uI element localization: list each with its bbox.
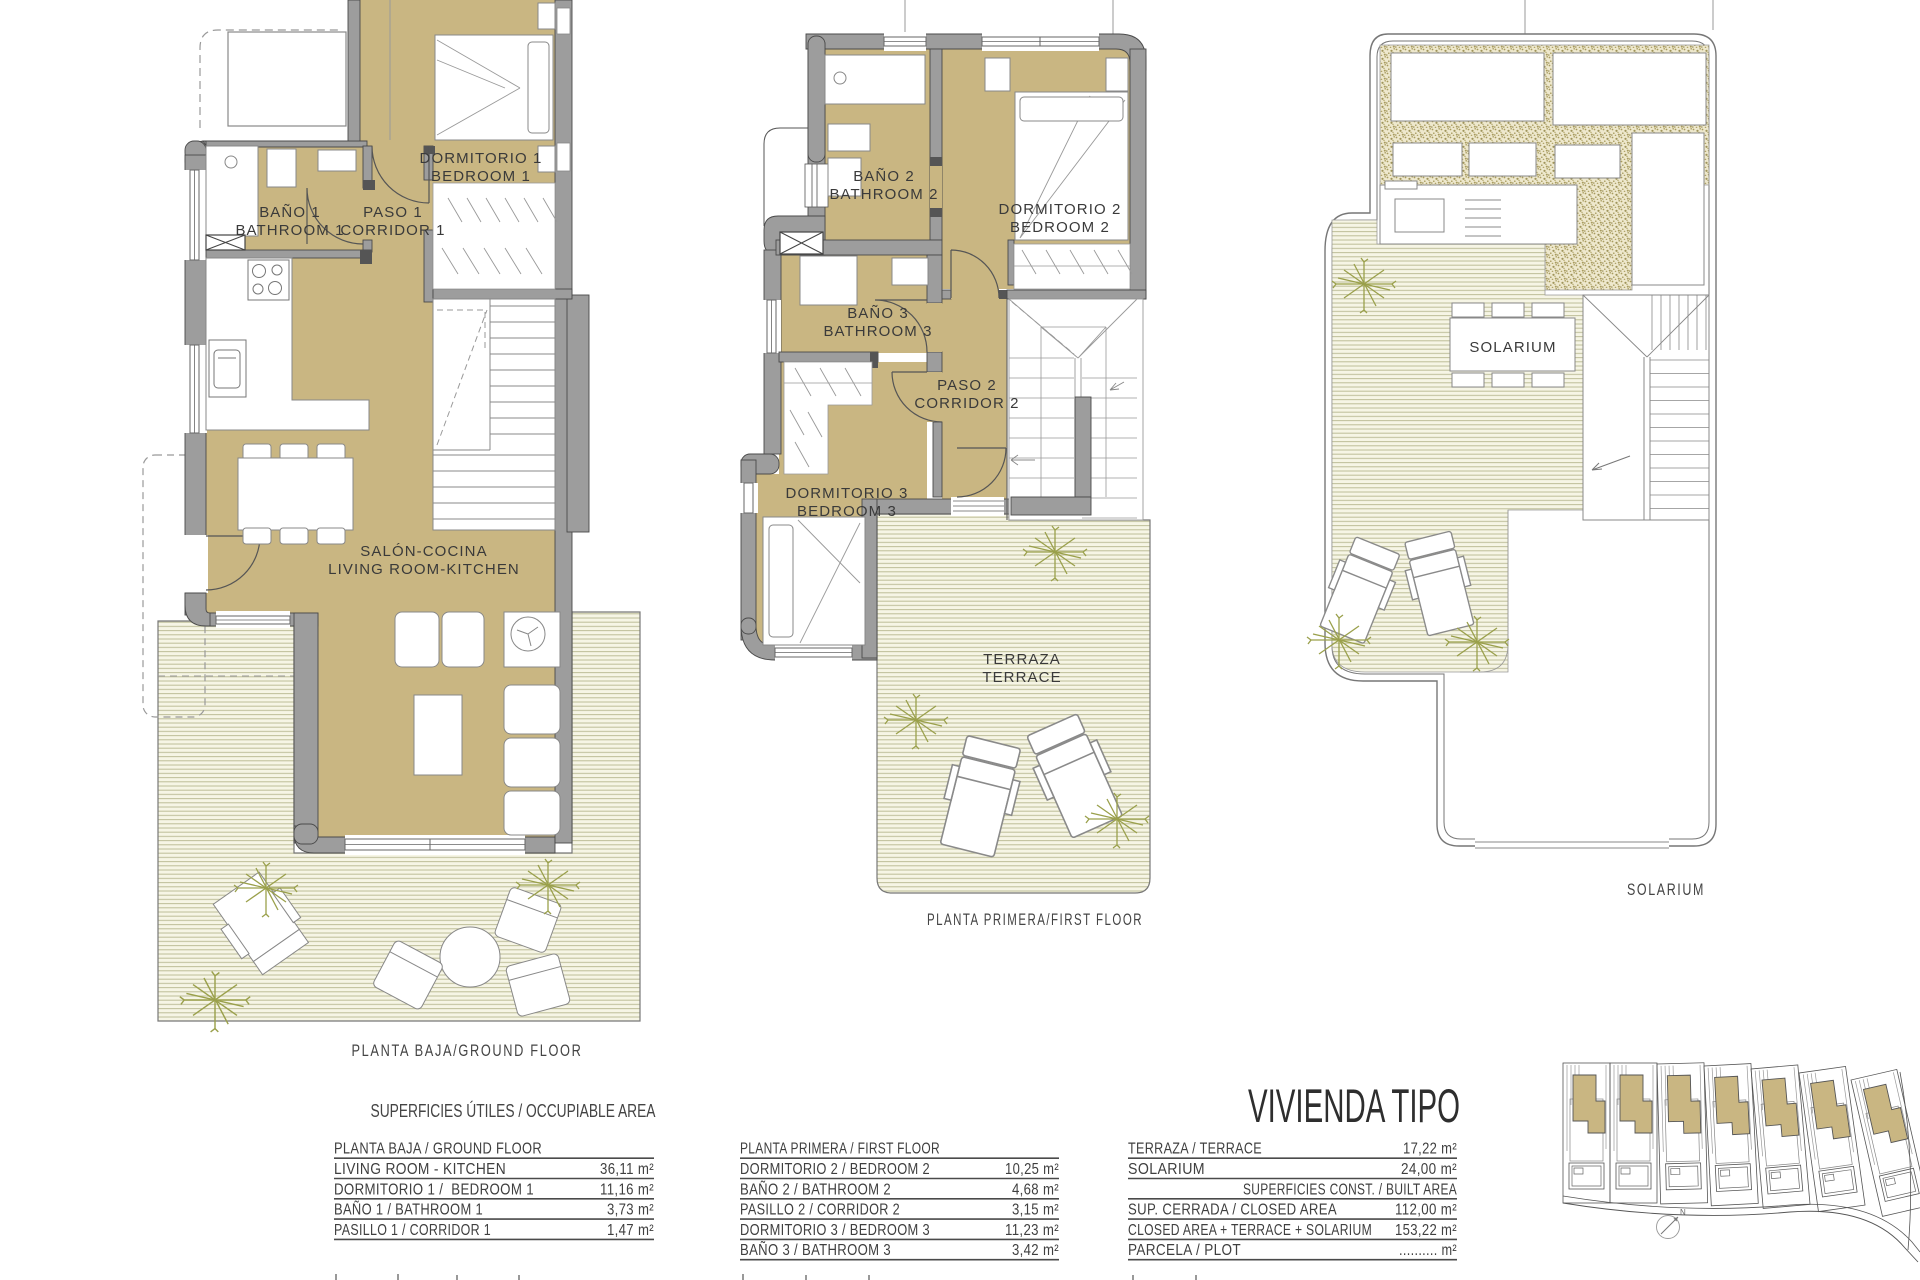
svg-text:DORMITORIO 2: DORMITORIO 2 — [999, 201, 1122, 218]
svg-text:PLANTA PRIMERA/FIRST FLOOR: PLANTA PRIMERA/FIRST FLOOR — [927, 910, 1143, 929]
svg-text:TERRAZA: TERRAZA — [983, 651, 1061, 668]
svg-text:CLOSED AREA + TERRACE + SOLARI: CLOSED AREA + TERRACE + SOLARIUM — [1128, 1222, 1372, 1239]
svg-text:PASO 2: PASO 2 — [937, 377, 997, 394]
svg-text:LIVING ROOM-KITCHEN: LIVING ROOM-KITCHEN — [328, 561, 520, 578]
svg-text:CORRIDOR 1: CORRIDOR 1 — [340, 222, 445, 239]
svg-text:TERRAZA / TERRACE: TERRAZA / TERRACE — [1128, 1141, 1262, 1158]
svg-text:PLANTA BAJA/GROUND FLOOR: PLANTA BAJA/GROUND FLOOR — [352, 1041, 583, 1060]
svg-text:SOLARIUM: SOLARIUM — [1469, 339, 1556, 356]
svg-text:24,00 m²: 24,00 m² — [1401, 1161, 1457, 1178]
svg-text:17,22 m²: 17,22 m² — [1403, 1141, 1457, 1158]
svg-text:BEDROOM 1: BEDROOM 1 — [431, 168, 531, 185]
svg-text:PASILLO 1 / CORRIDOR 1: PASILLO 1 / CORRIDOR 1 — [334, 1222, 491, 1239]
svg-text:BAÑO 3 / BATHROOM 3: BAÑO 3 / BATHROOM 3 — [740, 1242, 891, 1259]
svg-text:SOLARIUM: SOLARIUM — [1627, 880, 1705, 899]
svg-text:BATHROOM 3: BATHROOM 3 — [823, 323, 932, 340]
svg-text:VIVIENDA TIPO: VIVIENDA TIPO — [1248, 1079, 1460, 1132]
svg-text:BAÑO 1: BAÑO 1 — [259, 204, 321, 221]
svg-text:DORMITORIO 2 / BEDROOM 2: DORMITORIO 2 / BEDROOM 2 — [740, 1161, 930, 1178]
svg-text:3,15 m²: 3,15 m² — [1012, 1202, 1059, 1219]
svg-text:PLANTA PRIMERA / FIRST FLOOR: PLANTA PRIMERA / FIRST FLOOR — [740, 1141, 940, 1158]
svg-text:PLANTA BAJA / GROUND FLOOR: PLANTA BAJA / GROUND FLOOR — [334, 1141, 542, 1158]
svg-text:SUPERFICIES CONST. / BUILT AR: SUPERFICIES CONST. / BUILT AREA — [1243, 1181, 1457, 1198]
svg-text:1,47 m²: 1,47 m² — [607, 1222, 654, 1239]
svg-text:SOLARIUM: SOLARIUM — [1128, 1161, 1205, 1178]
svg-text:CORRIDOR 2: CORRIDOR 2 — [914, 395, 1019, 412]
svg-text:PARCELA / PLOT: PARCELA / PLOT — [1128, 1242, 1241, 1259]
svg-text:11,23 m²: 11,23 m² — [1005, 1222, 1059, 1239]
svg-text:N: N — [1680, 1208, 1686, 1217]
svg-text:BAÑO 2 / BATHROOM 2: BAÑO 2 / BATHROOM 2 — [740, 1181, 891, 1198]
svg-text:3,73 m²: 3,73 m² — [607, 1202, 654, 1219]
svg-text:BATHROOM 2: BATHROOM 2 — [829, 186, 938, 203]
svg-text:3,42 m²: 3,42 m² — [1012, 1242, 1059, 1259]
svg-text:.......... m²: .......... m² — [1399, 1242, 1457, 1259]
svg-text:112,00 m²: 112,00 m² — [1395, 1202, 1457, 1219]
svg-text:BAÑO 2: BAÑO 2 — [853, 168, 915, 185]
svg-text:PASILLO 2 / CORRIDOR 2: PASILLO 2 / CORRIDOR 2 — [740, 1202, 900, 1219]
svg-text:TERRACE: TERRACE — [982, 669, 1061, 686]
svg-text:10,25 m²: 10,25 m² — [1005, 1161, 1059, 1178]
svg-text:DORMITORIO 3: DORMITORIO 3 — [786, 485, 909, 502]
svg-text:BEDROOM 3: BEDROOM 3 — [797, 503, 897, 520]
svg-text:SALÓN-COCINA: SALÓN-COCINA — [360, 543, 487, 560]
svg-text:PASO 1: PASO 1 — [363, 204, 423, 221]
svg-text:DORMITORIO 1 / BEDROOM 1: DORMITORIO 1 / BEDROOM 1 — [334, 1181, 534, 1198]
svg-text:BAÑO 1 / BATHROOM 1: BAÑO 1 / BATHROOM 1 — [334, 1202, 483, 1219]
svg-text:4,68 m²: 4,68 m² — [1012, 1181, 1059, 1198]
svg-text:BEDROOM 2: BEDROOM 2 — [1010, 219, 1110, 236]
svg-text:SUP. CERRADA / CLOSED AREA: SUP. CERRADA / CLOSED AREA — [1128, 1202, 1337, 1219]
svg-text:153,22 m²: 153,22 m² — [1395, 1222, 1457, 1239]
svg-text:BAÑO 3: BAÑO 3 — [847, 305, 909, 322]
svg-text:SUPERFICIES ÚTILES / OCCUPIABL: SUPERFICIES ÚTILES / OCCUPIABLE AREA — [371, 1100, 656, 1121]
svg-text:36,11 m²: 36,11 m² — [600, 1161, 654, 1178]
svg-text:DORMITORIO 1: DORMITORIO 1 — [420, 150, 543, 167]
svg-text:BATHROOM 1: BATHROOM 1 — [235, 222, 344, 239]
svg-text:11,16 m²: 11,16 m² — [600, 1181, 654, 1198]
svg-text:LIVING ROOM - KITCHEN: LIVING ROOM - KITCHEN — [334, 1161, 506, 1178]
svg-text:DORMITORIO 3 / BEDROOM 3: DORMITORIO 3 / BEDROOM 3 — [740, 1222, 930, 1239]
